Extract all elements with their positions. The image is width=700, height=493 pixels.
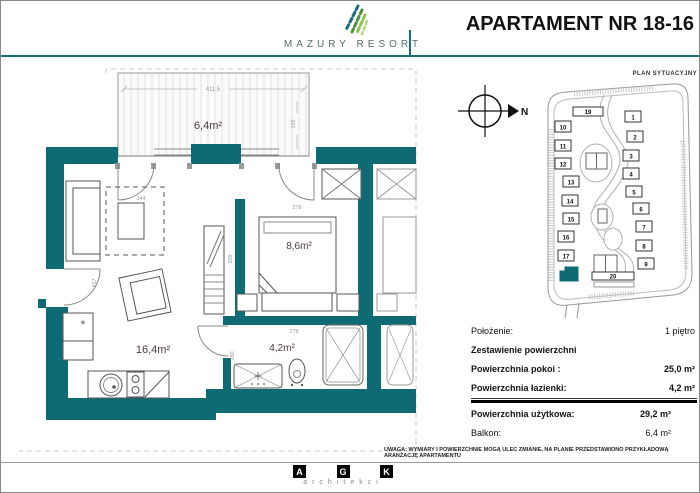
neighbour-apartment-fragment [377,169,416,385]
table-row: Położenie: 1 piętro [471,322,697,341]
bedroom: 278 309 8,6m² [228,169,361,311]
building-16: 16 [563,236,570,242]
dim-bathroom-left: 160 [230,351,236,360]
armchair [119,269,171,321]
building-11: 11 [560,145,567,151]
row-label: Powierzchnia użytkowa: [471,409,575,420]
floor-plan: 411.5 155 6,4m² [1,59,461,459]
shower [323,325,363,385]
architect-logo-subtext: architekci [293,479,393,486]
bathroom-door [198,326,228,356]
nightstand-left [237,294,257,311]
stove [127,372,144,397]
fridge [63,313,93,341]
mazury-resort-tree-icon [336,3,376,39]
table-row: Powierzchnia łazienki: 4,2 m² [471,379,697,399]
row-value: 6,4 m² [645,428,695,439]
row-label: Zestawienie powierzchni [471,345,577,356]
table-row: Powierzchnia użytkowa: 29,2 m² [471,405,697,424]
header-accent-tick [409,30,411,55]
parking-hatches [551,88,686,297]
siteplan-map: 19 10 11 12 13 14 15 16 17 20 1 2 [534,81,700,319]
dim-bedroom-left: 309 [228,254,234,263]
building-15: 15 [568,218,575,224]
header-divider [1,55,700,57]
dim-bathroom-top: 278 [289,329,298,335]
building-14: 14 [567,200,574,206]
dim-living-dashed: 344 [136,196,145,202]
fridge-snowflake-icon: ✳ [80,319,86,327]
agk-letter-g: G [337,465,350,478]
area-summary-table: Położenie: 1 piętro Zestawienie powierzc… [471,322,697,443]
bathroom-area-label: 4,2m² [269,343,295,354]
building-13: 13 [568,181,575,187]
row-value: 25,0 m² [664,364,695,375]
building-20: 20 [610,275,617,281]
kitchen-sink [100,374,122,396]
row-label: Położenie: [471,326,513,337]
building-17: 17 [563,255,570,261]
dim-living-left: 457 [92,278,98,287]
bathroom: 278 160 4,2m² [230,325,363,388]
siteplan-internal-road [580,95,634,279]
architect-logo: A G K architekci [293,465,393,486]
siteplan-title: PLAN SYTUACYJNY [601,71,697,77]
dim-balcony-width: 411.5 [206,87,221,93]
north-compass-icon: N [453,75,538,145]
row-label: Powierzchnia pokoi : [471,364,561,375]
shaft-box [322,169,361,199]
building-10: 10 [560,126,567,132]
nightstand-right [337,294,359,311]
sofa [66,181,100,261]
living-area-label: 16,4m² [136,344,171,356]
building-12: 12 [560,163,567,169]
coffee-table [118,203,144,239]
bedroom-area-label: 8,6m² [286,241,312,252]
footer-divider [1,462,700,463]
dim-bedroom-top: 278 [292,205,301,211]
kitchen-cabinet [63,341,93,360]
north-label: N [521,107,528,118]
table-row: Balkon: 6,4 m² [471,424,697,443]
brochure-page: MAZURY RESORT APARTAMENT NR 18-16 411.5 … [0,0,700,493]
balcony: 411.5 155 6,4m² [118,73,309,156]
table-row: Zestawienie powierzchni [471,341,697,360]
vanity-sink [234,364,282,388]
row-value: 4,2 m² [669,383,695,394]
agk-letter-a: A [293,465,306,478]
table-row: Powierzchnia pokoi : 25,0 m² [471,360,697,379]
toilet [289,359,305,386]
bed [259,217,336,311]
wardrobe [204,226,224,314]
dim-balcony-depth: 155 [291,119,297,128]
balcony-area-label: 6,4m² [194,120,222,132]
disclaimer-text: UWAGA: WYMIARY I POWIERZCHNIE MOGĄ ULEC … [384,447,696,459]
row-label: Balkon: [471,428,501,439]
building-19: 19 [585,110,592,116]
table-thick-divider [471,400,697,403]
row-label: Powierzchnia łazienki: [471,383,567,394]
row-value: 1 piętro [665,326,695,337]
agk-letter-k: K [380,465,393,478]
row-value: 29,2 m² [640,409,695,420]
building-18-highlighted [560,267,578,281]
page-title: APARTAMENT NR 18-16 [456,13,694,36]
